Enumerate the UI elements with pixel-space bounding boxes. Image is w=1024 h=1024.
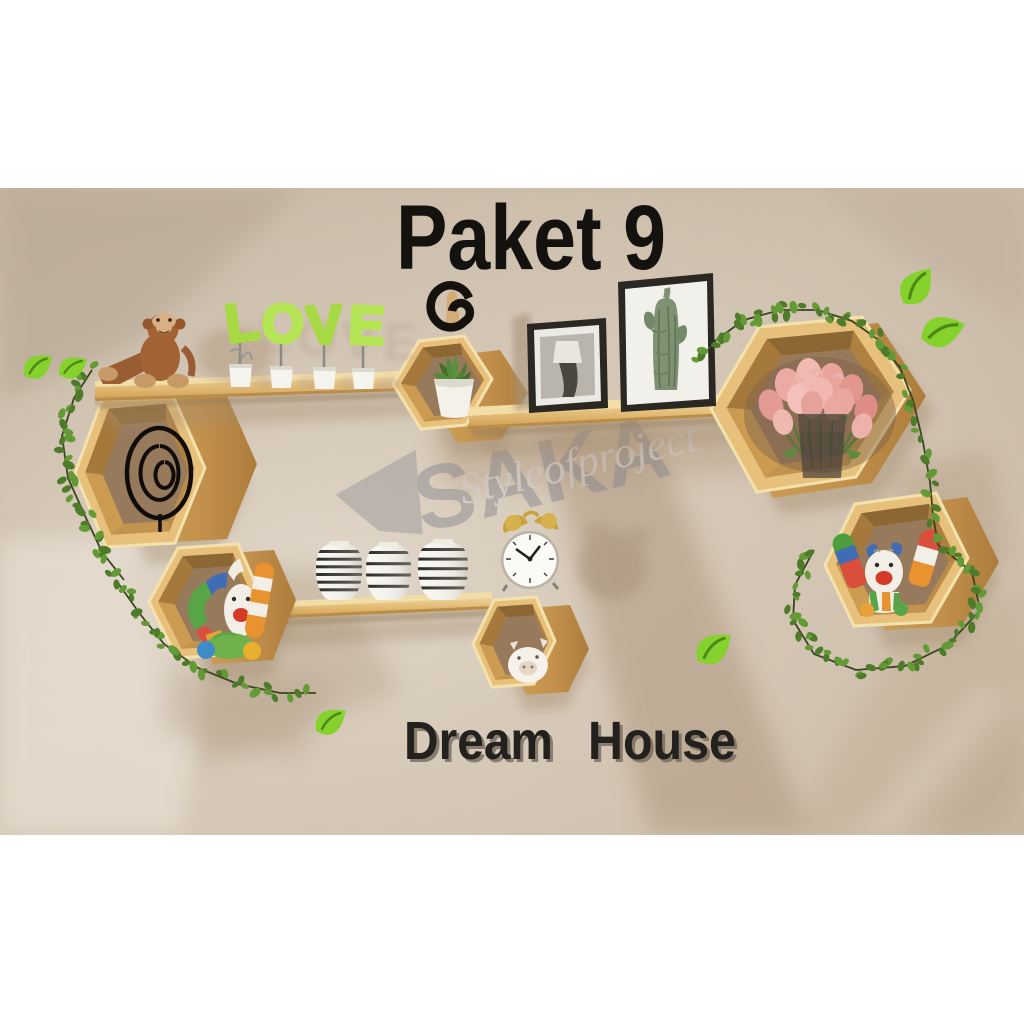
- svg-text:E: E: [347, 295, 386, 357]
- svg-text:Dream: Dream: [404, 711, 553, 771]
- svg-text:O: O: [260, 292, 306, 355]
- svg-text:Paket 9: Paket 9: [396, 187, 666, 289]
- svg-text:E: E: [383, 314, 418, 372]
- svg-text:V: V: [305, 294, 344, 356]
- svg-text:House: House: [588, 711, 736, 771]
